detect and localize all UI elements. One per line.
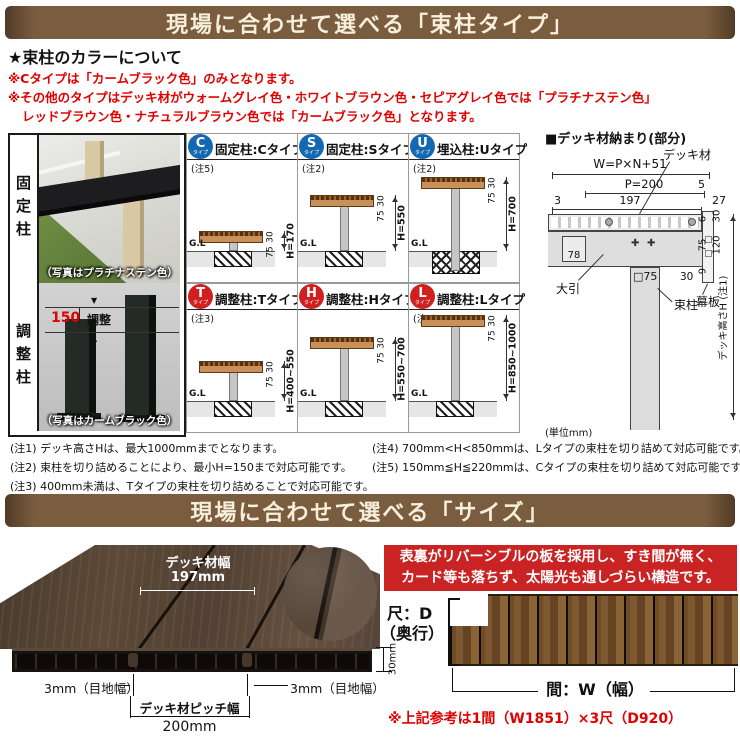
dim-sub: 75 xyxy=(267,246,276,257)
badge-letter: U xyxy=(410,138,435,150)
tick-line xyxy=(249,696,250,718)
page: 現場に合わせて選べる「束柱タイプ」 ★束柱のカラーについて ※Cタイプは「カーム… xyxy=(0,0,740,740)
post-shape xyxy=(229,372,238,401)
banner-size-title: 現場に合わせて選べる「サイズ」 xyxy=(190,495,549,527)
deck-height-dim-line xyxy=(733,214,734,420)
width-label: 間：W（幅） xyxy=(540,676,650,700)
type-cell-u: Uタイプ 埋込柱:Uタイプ (注2) G.L 30 75 H=700 xyxy=(408,133,520,283)
dim-78: 78 xyxy=(562,250,586,261)
cell-header: Cタイプ 固定柱:Cタイプ xyxy=(187,134,297,160)
tick-line xyxy=(452,668,453,692)
footnote-2: (注2) 束柱を切り詰めることにより、最小H=150まで対応可能です。 xyxy=(10,459,352,475)
cell-header: Sタイプ 固定柱:Sタイプ xyxy=(298,134,408,160)
dim-deck: 30 xyxy=(378,337,387,348)
dim-6: 6 xyxy=(699,216,708,222)
dim-deck: 30 xyxy=(267,361,276,372)
type-cell-s: Sタイプ 固定柱:Sタイプ (注2) G.L 30 75 H=550 xyxy=(297,133,409,283)
adjust-dim-value: 150 xyxy=(51,310,80,326)
banner-post-type-title: 現場に合わせて選べる「束柱タイプ」 xyxy=(166,7,574,39)
w-formula: W=P×N+51 xyxy=(550,157,710,171)
deck-board-shape xyxy=(310,195,374,207)
footnote-1: (注1) デッキ高さHは、最大1000mmまでとなります。 xyxy=(10,440,283,456)
type-title: 埋込柱:Uタイプ xyxy=(437,139,527,158)
width-dim-line xyxy=(452,691,538,692)
type-badge-l-icon: Lタイプ xyxy=(410,284,435,309)
deck-width-label: デッキ材幅 xyxy=(138,552,258,571)
tick-line xyxy=(247,674,248,696)
dim-height: H=170 xyxy=(287,223,296,259)
type-cell-c: Cタイプ 固定柱:Cタイプ (注5) G.L 30 75 H=170 xyxy=(186,133,298,283)
thickness-dim-line xyxy=(383,647,384,671)
dim-height: H=550~700 xyxy=(398,337,407,401)
joint-closeup-photo xyxy=(283,547,377,641)
fixed-post-label: 固定柱 xyxy=(10,135,39,283)
cell-body: G.L 30 75 H=550~700 xyxy=(298,309,408,432)
adjust-dim-line xyxy=(45,332,179,333)
post-label: 束柱 xyxy=(674,296,698,313)
deck-detail-diagram: ■デッキ材納まり(部分) デッキ材 W=P×N+51 P=200 5 3 197… xyxy=(545,128,740,434)
type-diagram: G.L 30 75 H=850~1000 xyxy=(409,309,519,432)
deck-board-shape xyxy=(421,177,485,189)
cell-header: Lタイプ 調整柱:Lタイプ xyxy=(409,284,519,310)
detail-title: ■デッキ材納まり(部分) xyxy=(545,128,686,147)
fixed-post-photo: （写真はプラチナステン色） xyxy=(39,135,180,283)
dim-line-w xyxy=(552,174,710,175)
post-photo-panel: 固定柱 （写真はプラチナステン色） 調整柱 ▼ ▲ xyxy=(8,133,186,437)
cell-body: (注2) G.L 30 75 H=700 xyxy=(409,159,519,282)
fascia-label: 幕板 xyxy=(696,293,720,310)
badge-sub: タイプ xyxy=(190,150,211,155)
banner-post-type: 現場に合わせて選べる「束柱タイプ」 xyxy=(5,6,735,39)
board-joint-shape xyxy=(242,653,252,667)
badge-letter: C xyxy=(188,138,213,150)
type-badge-s-icon: Sタイプ xyxy=(299,134,324,159)
thickness-label: 30mm xyxy=(389,643,398,675)
dim-deck: 30 xyxy=(378,195,387,206)
badge-sub: タイプ xyxy=(412,300,433,305)
type-title: 調整柱:Tタイプ xyxy=(215,289,304,308)
deck-beam-shape xyxy=(39,162,180,218)
cell-header: Uタイプ 埋込柱:Uタイプ xyxy=(409,134,519,160)
dim-deck: 30 xyxy=(489,177,498,188)
deck-section-shape xyxy=(548,214,702,231)
foundation-hatch xyxy=(214,401,252,417)
adjust-post-label: 調整柱 xyxy=(10,283,39,431)
dim-sub: 75 xyxy=(489,330,498,341)
size-reference-note: ※上記参考は1間（W1851）×3尺（D920） xyxy=(388,708,682,728)
type-badge-u-icon: Uタイプ xyxy=(410,134,435,159)
width-dim-line xyxy=(650,691,735,692)
gl-label: G.L xyxy=(189,389,206,399)
dim-deck: 30 xyxy=(267,231,276,242)
feature-callout: 表裏がリバーシブルの板を採用し、すき間が無く、 カード等も落ちず、太陽光も通しづ… xyxy=(384,545,737,591)
depth-bracket xyxy=(448,598,460,666)
post-section-dim: □75 xyxy=(633,270,657,283)
color-note-1: ※Cタイプは「カームブラック色」のみとなります。 xyxy=(8,68,302,87)
type-diagram: G.L 30 75 H=400~550 xyxy=(187,309,297,432)
dim-9: 9 xyxy=(699,268,708,274)
arrow-down-icon: ▼ xyxy=(91,296,97,305)
gl-label: G.L xyxy=(300,389,317,399)
black-post-shape xyxy=(125,295,156,417)
tick-line xyxy=(133,674,134,696)
post-shape xyxy=(340,206,349,251)
feature-line-1: 表裏がリバーシブルの板を採用し、すき間が無く、 xyxy=(400,547,722,568)
type-cell-t: Tタイプ 調整柱:Tタイプ (注3) G.L 30 75 H=400~550 xyxy=(186,283,298,433)
deck-board-shape xyxy=(199,231,263,243)
screw-mark: ✚ xyxy=(631,238,639,249)
footnote-5: (注5) 150mm≦H≦220mmは、Cタイプの束柱を切り詰めて対応可能です。 xyxy=(372,459,740,475)
fixed-photo-caption: （写真はプラチナステン色） xyxy=(41,265,178,280)
feature-line-2: カード等も落ちず、太陽光も通しづらい構造です。 xyxy=(401,568,720,589)
dim-sub: 75 xyxy=(378,210,387,221)
dim-197: 197 xyxy=(560,194,700,207)
badge-sub: タイプ xyxy=(412,150,433,155)
foundation-hatch xyxy=(214,251,252,267)
type-diagram: G.L 30 75 H=550 xyxy=(298,159,408,282)
deck-board-shape xyxy=(421,315,485,327)
type-title: 調整柱:Hタイプ xyxy=(326,289,416,308)
post-section-shape xyxy=(630,267,660,430)
badge-letter: S xyxy=(299,138,324,150)
adjust-dim-line xyxy=(45,307,179,308)
dim-height: H=850~1000 xyxy=(509,323,518,393)
cell-header: Tタイプ 調整柱:Tタイプ xyxy=(187,284,297,310)
screw-mark: ✚ xyxy=(647,238,655,249)
type-diagram: G.L 30 75 H=700 xyxy=(409,159,519,282)
dim-sub: 75 xyxy=(378,352,387,363)
type-badge-h-icon: Hタイプ xyxy=(299,284,324,309)
post-shape xyxy=(451,188,460,271)
screw-icon xyxy=(688,218,696,226)
foundation-hatch xyxy=(325,251,363,267)
adjust-photo-caption: （写真はカームブラック色） xyxy=(42,413,178,428)
adjust-post-photo: ▼ ▲ 150 調整 （写真はカームブラック色） xyxy=(39,283,180,431)
badge-sub: タイプ xyxy=(190,300,211,305)
type-title: 固定柱:Cタイプ xyxy=(215,139,304,158)
post-shape xyxy=(340,348,349,401)
badge-letter: H xyxy=(299,288,324,300)
color-note-2: ※その他のタイプはデッキ材がウォームグレイ色・ホワイトブラウン色・セピアグレイ色… xyxy=(8,87,657,106)
adjust-post-row: 調整柱 ▼ ▲ 150 調整 （写真はカームブラック色） xyxy=(10,283,180,431)
girder-label: 大引 xyxy=(556,280,580,297)
badge-letter: T xyxy=(188,288,213,300)
deck-height-label: デッキ高さH (注1) xyxy=(720,276,729,361)
depth-label-sub: （奥行） xyxy=(380,620,444,644)
post-shape xyxy=(451,326,460,401)
cell-body: (注5) G.L 30 75 H=170 xyxy=(187,159,297,282)
cell-header: Hタイプ 調整柱:Hタイプ xyxy=(298,284,408,310)
dim-height: H=400~550 xyxy=(287,349,296,413)
type-title: 調整柱:Lタイプ xyxy=(437,289,525,308)
type-cell-l: Lタイプ 調整柱:Lタイプ (注4) G.L 30 75 H=850~1000 xyxy=(408,283,520,433)
banner-size: 現場に合わせて選べる「サイズ」 xyxy=(5,494,735,527)
type-badge-c-icon: Cタイプ xyxy=(188,134,213,159)
type-title: 固定柱:Sタイプ xyxy=(326,139,415,158)
dim-27: 27 xyxy=(712,194,726,207)
gl-label: G.L xyxy=(411,389,428,399)
pitch-label: デッキ材ピッチ幅 xyxy=(130,698,249,717)
gl-label: G.L xyxy=(189,239,206,249)
foundation-hatch xyxy=(436,401,474,417)
pitch-value: 200mm xyxy=(130,719,249,735)
dim-75: 75 xyxy=(699,239,708,252)
arrow-line xyxy=(254,685,288,686)
footnote-4: (注4) 700mm<H<850mmは、Lタイプの束柱を切り詰めて対応可能です。 xyxy=(372,440,740,456)
joint-width-label-right: 3mm（目地幅） xyxy=(290,678,385,697)
dim-120: 120 xyxy=(713,235,722,254)
type-diagram: G.L 30 75 H=550~700 xyxy=(298,309,408,432)
board-joint-shape xyxy=(128,653,138,667)
dim-5: 5 xyxy=(698,178,705,191)
tick-line xyxy=(130,696,131,718)
p-dim: P=200 xyxy=(585,177,703,191)
type-cell-h: Hタイプ 調整柱:Hタイプ G.L 30 75 H=550~700 xyxy=(297,283,409,433)
fixed-post-row: 固定柱 （写真はプラチナステン色） xyxy=(10,135,180,283)
dim-30-top: 30 xyxy=(713,210,722,223)
dim-deck: 30 xyxy=(489,315,498,326)
deck-width-value: 197mm xyxy=(138,570,258,585)
dim-line-197 xyxy=(552,209,702,210)
deck-plan-panel xyxy=(450,594,738,666)
foundation-hatch xyxy=(325,401,363,417)
deck-cross-section xyxy=(12,648,372,672)
color-heading: ★束柱のカラーについて xyxy=(8,44,182,68)
badge-sub: タイプ xyxy=(301,300,322,305)
joint-width-label-left: 3mm（目地幅） xyxy=(44,678,139,697)
footnote-3: (注3) 400mm未満は、Tタイプの束柱を切り詰めることで対応可能です。 xyxy=(10,478,374,494)
cell-body: (注4) G.L 30 75 H=850~1000 xyxy=(409,309,519,432)
dim-30-bottom: 30 xyxy=(680,271,693,283)
color-note-3: レッドブラウン色・ナチュラルブラウン色では「カームブラック色」となります。 xyxy=(22,106,482,125)
post-shape xyxy=(229,242,238,251)
adjust-dim-text: 調整 xyxy=(87,311,111,328)
deck-board-shape xyxy=(310,337,374,349)
arrow-up-icon: ▲ xyxy=(91,334,97,343)
screw-icon xyxy=(605,218,613,226)
dim-height: H=550 xyxy=(398,205,407,241)
gl-label: G.L xyxy=(411,239,428,249)
arrow-line xyxy=(118,685,130,686)
handrail-shape xyxy=(39,151,120,176)
tick-line xyxy=(734,668,735,692)
badge-sub: タイプ xyxy=(301,150,322,155)
cell-body: (注3) G.L 30 75 H=400~550 xyxy=(187,309,297,432)
dim-height: H=700 xyxy=(509,196,518,232)
type-diagram: G.L 30 75 H=170 xyxy=(187,159,297,282)
gl-label: G.L xyxy=(300,239,317,249)
unit-label: (単位mm) xyxy=(545,424,592,439)
type-badge-t-icon: Tタイプ xyxy=(188,284,213,309)
cell-body: (注2) G.L 30 75 H=550 xyxy=(298,159,408,282)
pitch-dim-line xyxy=(130,716,249,717)
deck-board-shape xyxy=(199,361,263,373)
badge-letter: L xyxy=(410,288,435,300)
dim-sub: 75 xyxy=(489,192,498,203)
deck-width-dim-line xyxy=(140,590,255,591)
dim-sub: 75 xyxy=(267,376,276,387)
